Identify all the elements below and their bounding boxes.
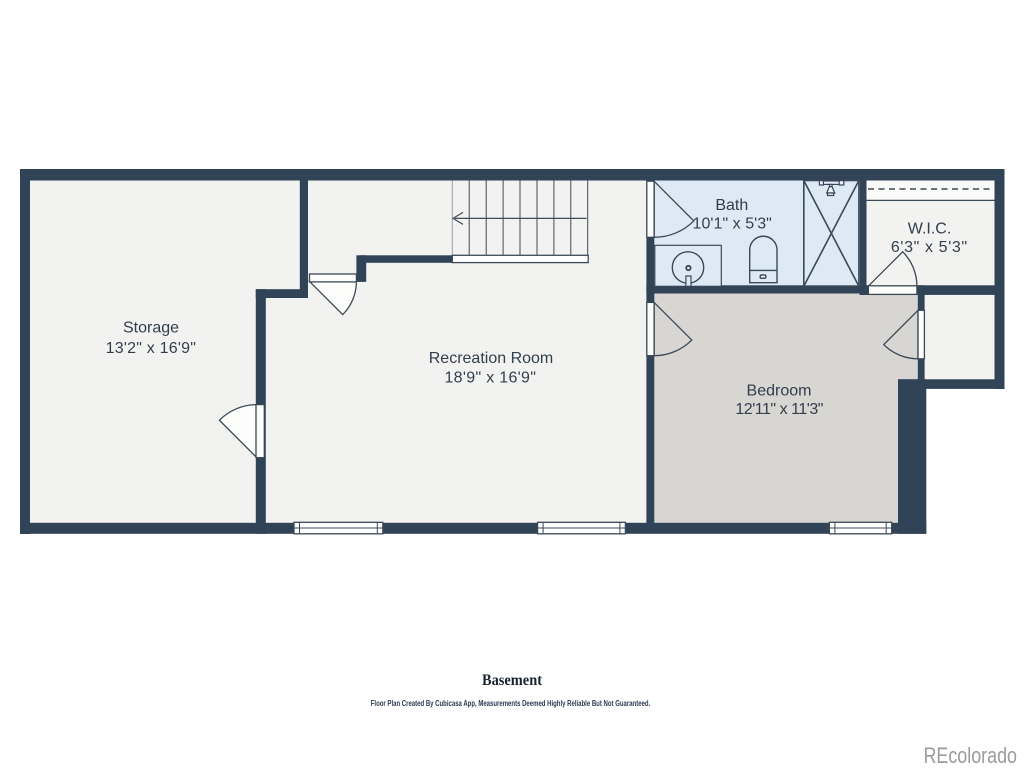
svg-text:Storage: Storage — [123, 320, 179, 337]
svg-text:W.I.C.: W.I.C. — [908, 220, 952, 237]
svg-text:18'9" x 16'9": 18'9" x 16'9" — [444, 369, 536, 386]
svg-text:6'3" x 5'3": 6'3" x 5'3" — [891, 239, 967, 256]
svg-text:Basement: Basement — [482, 672, 543, 689]
svg-text:REcolorado: REcolorado — [924, 743, 1018, 768]
svg-text:13'2" x 16'9": 13'2" x 16'9" — [106, 340, 196, 357]
svg-text:Bath: Bath — [715, 197, 748, 214]
svg-text:12'11" x 11'3": 12'11" x 11'3" — [735, 401, 823, 418]
svg-text:Bedroom: Bedroom — [747, 382, 812, 399]
svg-text:10'1" x 5'3": 10'1" x 5'3" — [693, 215, 772, 232]
svg-text:Recreation Room: Recreation Room — [429, 350, 554, 367]
svg-text:Floor Plan Created By Cubicasa: Floor Plan Created By Cubicasa App, Meas… — [371, 699, 651, 708]
